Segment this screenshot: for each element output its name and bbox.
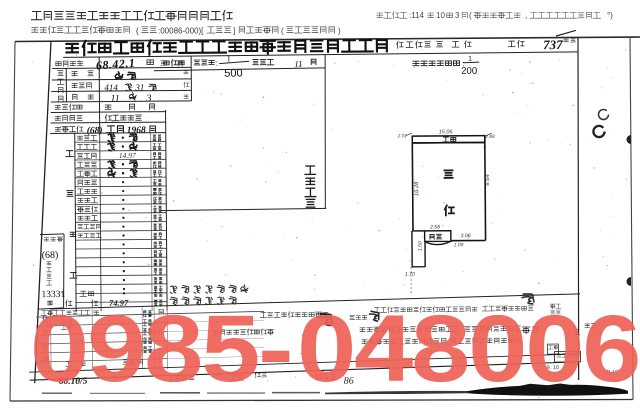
- svg-text::00086-000)[: :00086-000)[: [158, 27, 204, 36]
- svg-text:): ): [338, 27, 341, 36]
- svg-text:]: ]: [233, 27, 235, 36]
- svg-text:3.06: 3.06: [461, 233, 471, 239]
- svg-text:11: 11: [294, 59, 302, 69]
- svg-text:1.08: 1.08: [454, 242, 464, 248]
- svg-text:(: (: [136, 27, 139, 36]
- svg-text:1.50: 1.50: [418, 241, 424, 251]
- svg-text:,: ,: [525, 11, 527, 20]
- svg-text:200: 200: [461, 66, 477, 77]
- svg-text::114: :114: [409, 11, 425, 20]
- svg-text::: :: [216, 59, 218, 68]
- svg-text:(68): (68): [42, 250, 59, 261]
- svg-text:1.70: 1.70: [405, 272, 415, 278]
- svg-text:10: 10: [436, 11, 445, 20]
- svg-text:15.06: 15.06: [439, 129, 454, 135]
- svg-text:14.97: 14.97: [119, 151, 136, 160]
- svg-text:68.42.1: 68.42.1: [95, 56, 135, 73]
- svg-text:16.28: 16.28: [414, 181, 420, 196]
- svg-text:2.56: 2.56: [429, 224, 440, 230]
- svg-text:1: 1: [468, 56, 472, 63]
- svg-text:0985-048006: 0985-048006: [30, 296, 639, 401]
- svg-text:11: 11: [110, 93, 119, 104]
- svg-text:737: 737: [543, 37, 563, 52]
- svg-text:3: 3: [145, 93, 151, 104]
- svg-text:8.64: 8.64: [485, 174, 491, 185]
- svg-text:(: (: [281, 27, 284, 36]
- svg-text:°): °): [607, 11, 613, 20]
- svg-text:3: 3: [455, 11, 460, 20]
- svg-text:2.01: 2.01: [397, 133, 408, 139]
- svg-text:(: (: [469, 11, 472, 20]
- svg-text:2.88: 2.88: [484, 134, 495, 140]
